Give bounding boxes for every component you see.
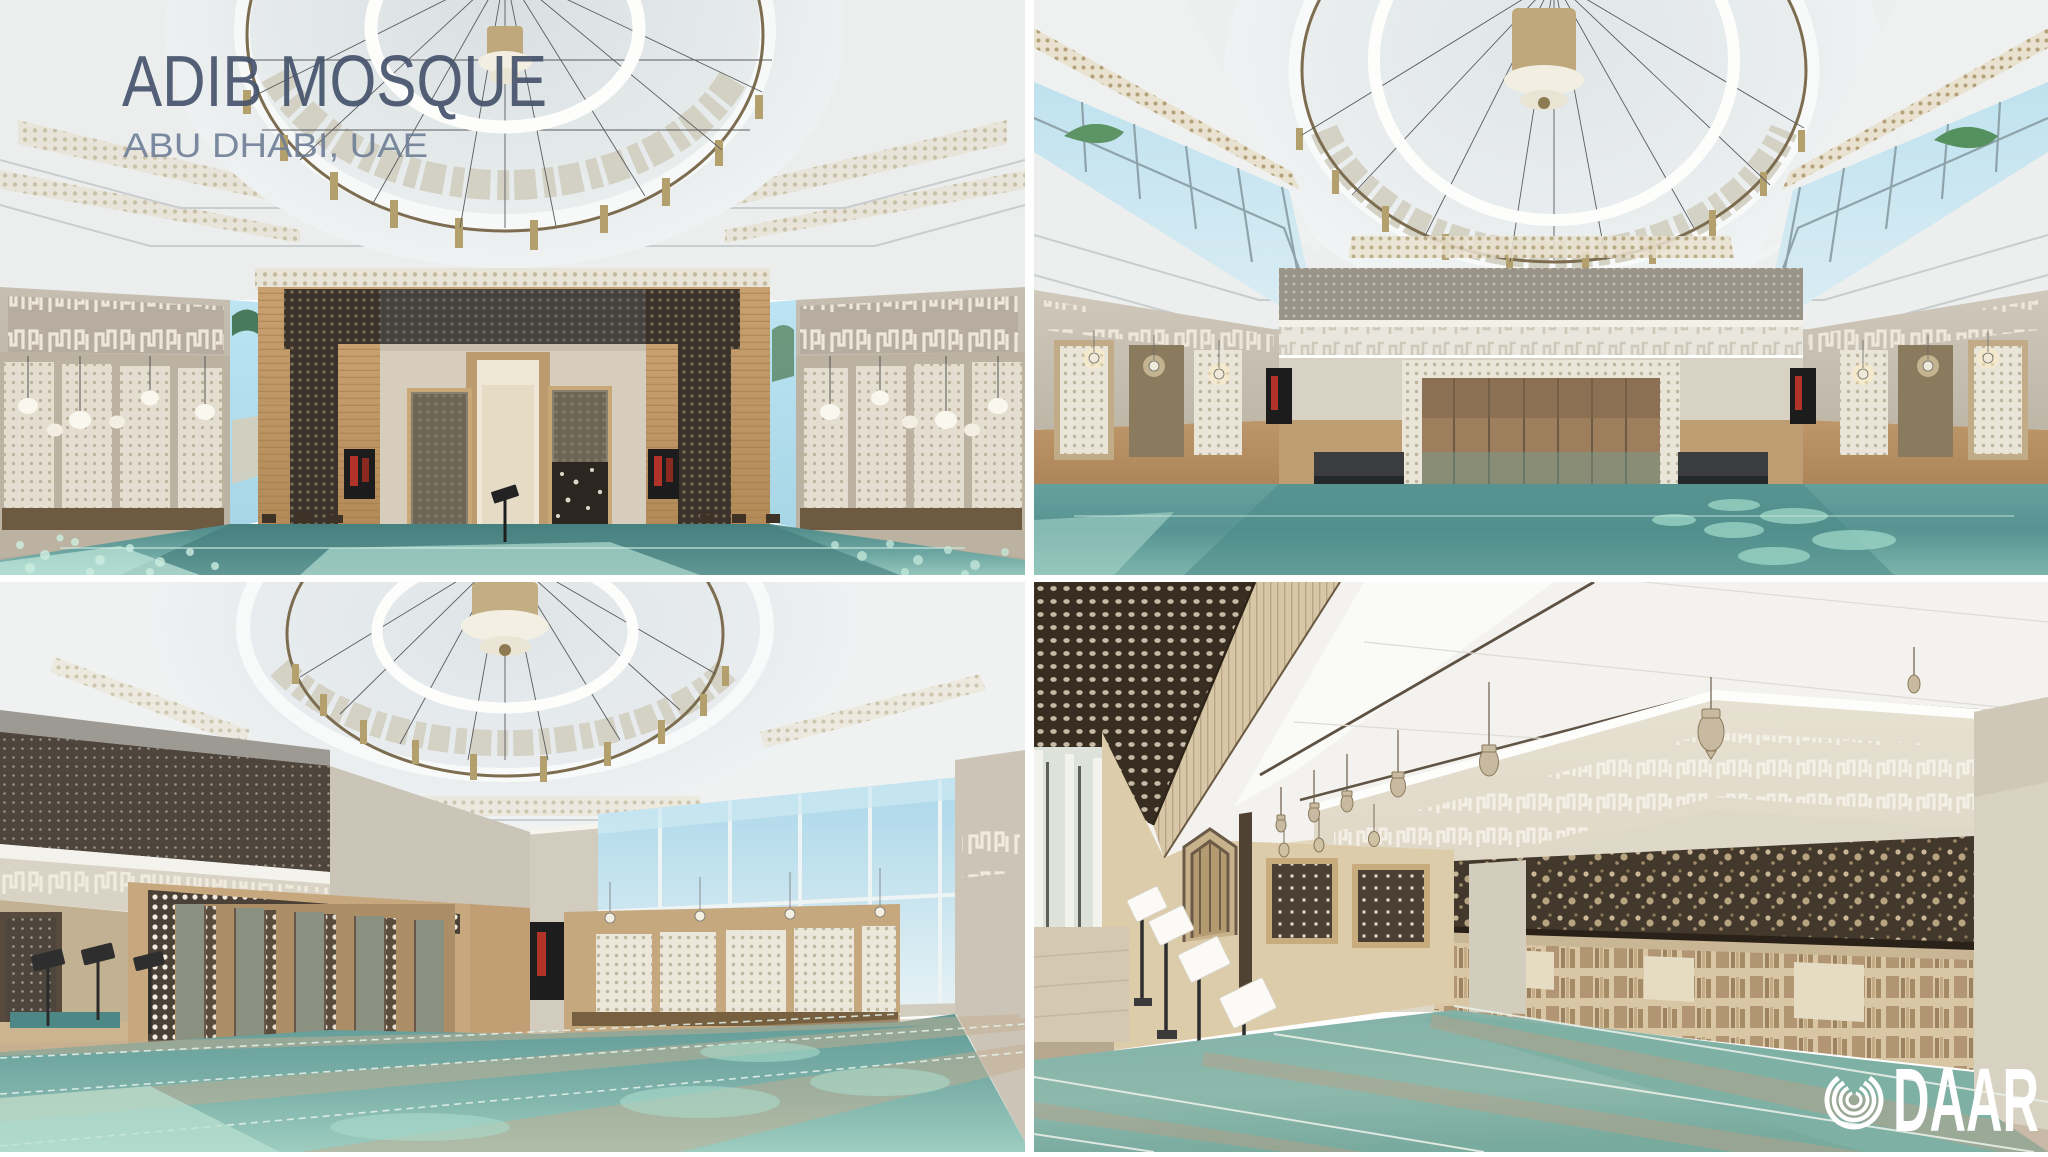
svg-text:ABU DHABI, UAE: ABU DHABI, UAE bbox=[123, 127, 428, 165]
svg-text:ADIB MOSQUE: ADIB MOSQUE bbox=[122, 42, 547, 122]
svg-text:DAAR: DAAR bbox=[1893, 1051, 2039, 1151]
